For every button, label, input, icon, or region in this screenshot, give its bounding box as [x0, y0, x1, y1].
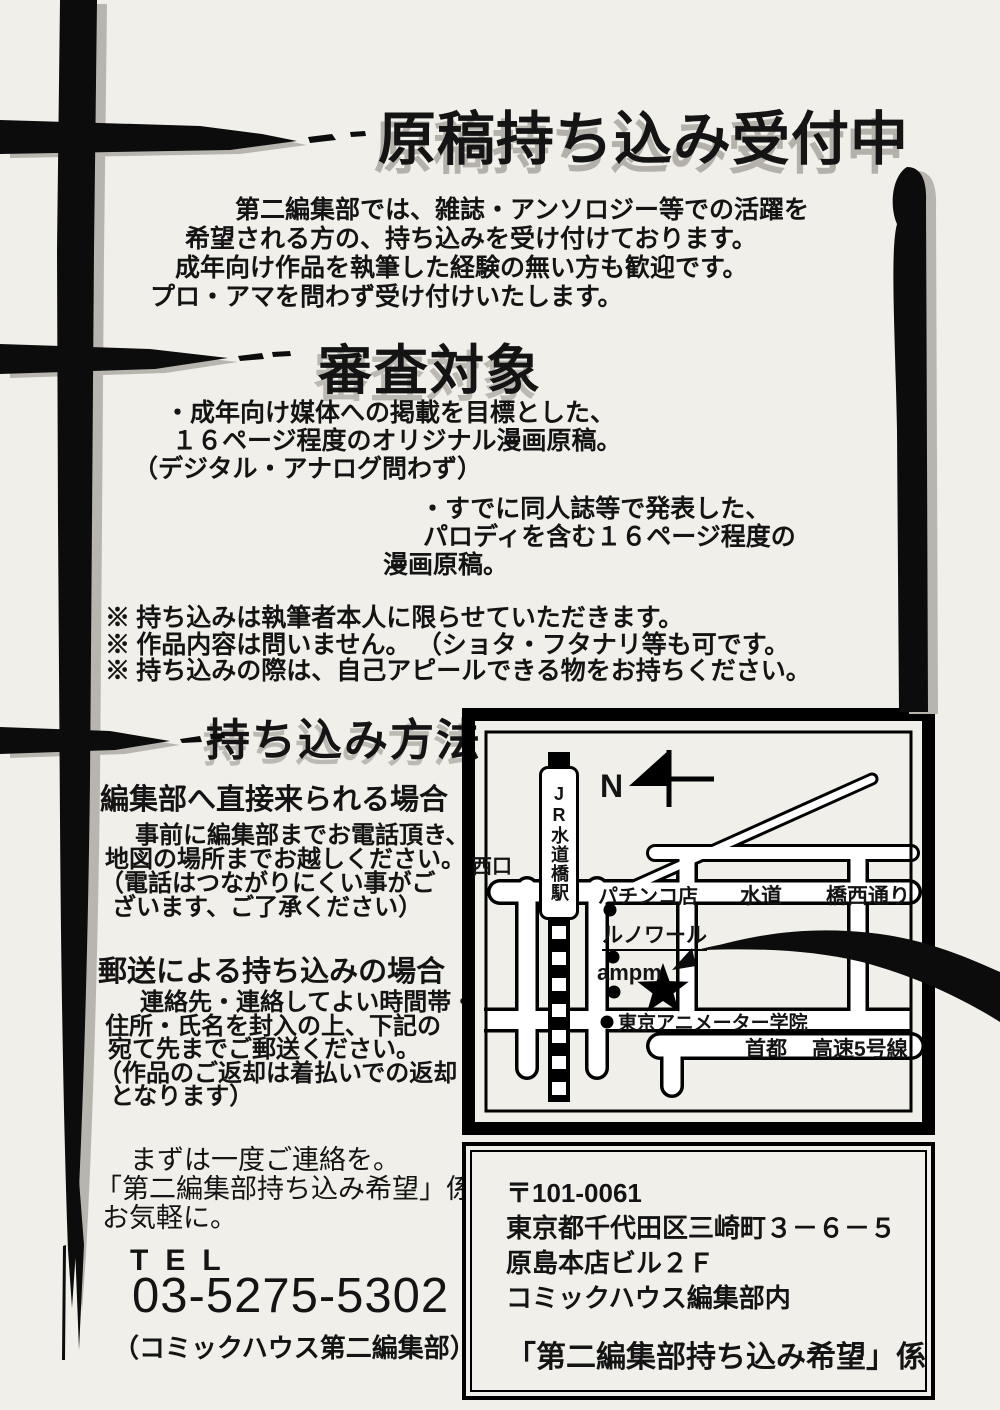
text-line: 住所・氏名を封入の上、下記の: [98, 1016, 475, 1040]
text-line: 事前に編集部までお電話頂き、: [100, 824, 469, 848]
text-line: ※ 作品内容は問いません。 （ショタ・フタナリ等も可です。: [105, 633, 811, 660]
text-line: パロディを含む１６ページ程度の: [383, 523, 796, 551]
text-line: ※ 持ち込みの際は、自己アピールできる物をお持ちください。: [105, 659, 811, 686]
text-line: 地図の場所までお越しください。: [100, 848, 469, 872]
text-line: 連絡先・連絡してよい時間帯・: [98, 992, 475, 1016]
mail-paragraph: 連絡先・連絡してよい時間帯・ 住所・氏名を封入の上、下記の 宛て先までご郵送くだ…: [98, 992, 475, 1110]
scanned-notice-page: 原稿持ち込み受付中 第二編集部では、雑誌・アンソロジー等での活躍を 希望される方…: [0, 0, 1000, 1410]
right-vertical-brush: [893, 167, 928, 712]
direct-paragraph: 事前に編集部までお電話頂き、 地図の場所までお越しください。 （電話はつながりに…: [100, 824, 469, 920]
text-line: 成年向け作品を執筆した経験の無い方も歓迎です。: [150, 254, 809, 283]
section-heading-houhou: 持ち込み方法: [206, 704, 482, 768]
address-line: 原島本店ビル２Ｆ: [506, 1246, 925, 1281]
compass-icon: [629, 750, 714, 807]
text-line: ざいます、ご了承ください）: [100, 896, 469, 920]
access-map: JR水道橋駅 N 西口 パチンコ店 水道 橋西通り ルノワール ampm 東京ア…: [462, 708, 935, 1135]
subheading-mail: 郵送による持ち込みの場合: [98, 948, 445, 990]
address-line: 東京都千代田区三崎町３－６－５: [506, 1211, 925, 1246]
tel-note: （コミックハウス第二編集部）: [113, 1328, 476, 1365]
text-line: プロ・アマを問わず受け付けいたします。: [150, 283, 809, 312]
text-line: ・成年向け媒体への掲載を目標とした、: [133, 399, 622, 427]
text-line: ・すでに同人誌等で発表した、: [383, 495, 796, 523]
text-line: 漫画原稿。: [383, 551, 796, 579]
pachinko-label: パチンコ店: [598, 880, 698, 909]
address-line: コミックハウス編集部内: [506, 1281, 925, 1316]
shinsa-bullet-original: ・成年向け媒体への掲載を目標とした、 １６ページ程度のオリジナル漫画原稿。 （デ…: [133, 399, 622, 483]
renoir-label: ルノワール: [602, 919, 707, 951]
address-box: 〒101-0061 東京都千代田区三崎町３－６－５ 原島本店ビル２Ｆ コミックハ…: [462, 1142, 935, 1400]
left-vertical-brush: [57, 0, 97, 1308]
text-line: となります）: [98, 1086, 475, 1110]
page-title: 原稿持ち込み受付中: [378, 92, 909, 176]
compass-north-label: N: [600, 768, 623, 805]
text-line: １６ページ程度のオリジナル漫画原稿。: [133, 427, 622, 455]
shinsa-bullet-doujin: ・すでに同人誌等で発表した、 パロディを含む１６ページ程度の 漫画原稿。: [383, 495, 796, 579]
section-heading-shinsa: 審査対象: [318, 326, 542, 405]
address-box-inner: 〒101-0061 東京都千代田区三崎町３－６－５ 原島本店ビル２Ｆ コミックハ…: [470, 1150, 927, 1392]
title-brush: [0, 120, 297, 154]
text-line: （電話はつながりにくい事がご: [100, 872, 469, 896]
shuto-expressway-label: 首都: [745, 1033, 787, 1063]
ampm-label: ampm: [597, 960, 662, 986]
text-line: 宛て先までご郵送ください。: [98, 1039, 475, 1063]
west-exit-label: 西口: [472, 850, 512, 879]
hashinishi-street-label: 橋西通り: [826, 880, 910, 910]
subheading-direct: 編集部へ直接来られる場合: [100, 776, 448, 818]
text-line: （デジタル・アナログ問わず）: [133, 455, 622, 483]
station-sign: JR水道橋駅: [539, 766, 579, 920]
animator-school-label: 東京アニメーター学院: [618, 1008, 808, 1035]
shinsa-brush: [0, 344, 228, 374]
intro-paragraph: 第二編集部では、雑誌・アンソロジー等での活躍を 希望される方の、持ち込みを受け付…: [150, 196, 809, 312]
houhou-brush: [0, 727, 170, 754]
tel-number: 03-5275-5302: [132, 1268, 449, 1324]
text-line: 希望される方の、持ち込みを受け付けております。: [150, 225, 809, 254]
text-line: ※ 持ち込みは執筆者本人に限らせていただきます。: [105, 606, 811, 633]
postal-code: 〒101-0061: [506, 1176, 925, 1211]
text-line: （作品のご返却は着払いでの返却: [98, 1063, 475, 1087]
suido-street-label: 水道: [740, 880, 782, 910]
recipient-line: 「第二編集部持ち込み希望」係: [506, 1332, 925, 1376]
shinsa-notes: ※ 持ち込みは執筆者本人に限らせていただきます。 ※ 作品内容は問いません。 （…: [105, 606, 811, 686]
text-line: 第二編集部では、雑誌・アンソロジー等での活躍を: [150, 196, 809, 225]
expressway-no5-label: 高速5号線: [812, 1033, 908, 1063]
